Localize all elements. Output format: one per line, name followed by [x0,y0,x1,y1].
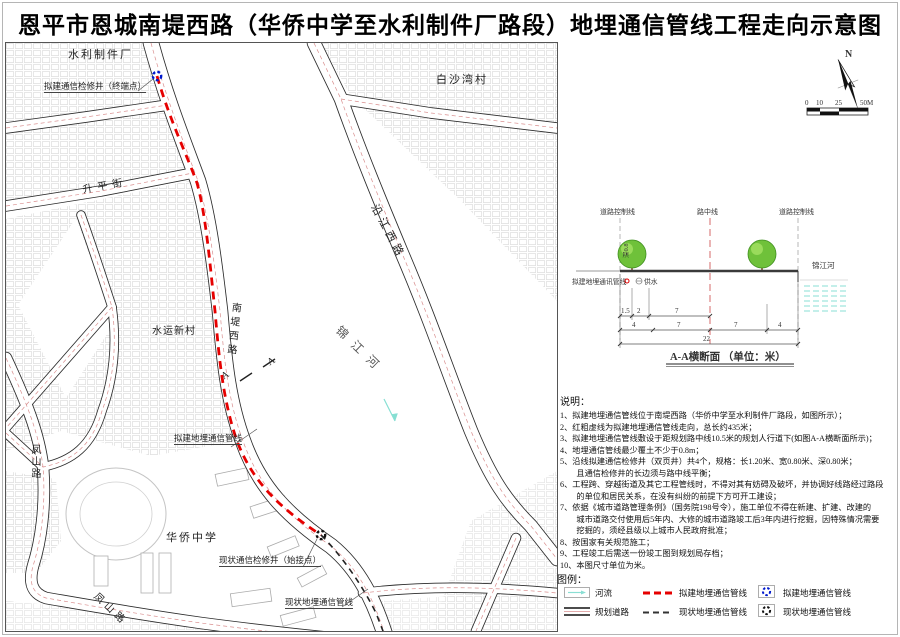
dim-4b: 4 [778,321,782,329]
label-shuiyun-village: 水运新村 [152,327,196,337]
river-swatch-icon [564,587,590,598]
note-line: 7、依据《城市道路管理条例》（国务院198号令），施工单位不得在新建、扩建、改建… [560,502,896,514]
note-line: 1、拟建地埋通信管线位于南堤西路（华侨中学至水利制件厂路段，如图所示）； [560,410,896,422]
dim-1-5: 1.5 [621,307,630,315]
river-hatch [804,286,846,311]
section-water-label: 供水 [644,277,658,286]
site-map [6,43,557,631]
note-line: 10、本图尺寸单位为米。 [560,560,896,572]
proposed-well-swatch-icon [758,585,775,598]
scale-tick-25: 25 [835,99,843,107]
cross-section: 道路控制线 路中线 道路控制线 锦江河 [558,192,898,377]
label-baisha-village: 白沙湾村 [436,75,488,86]
dim-4a: 4 [632,321,636,329]
label-proposed-line: 拟建地埋通信管线 [174,434,242,445]
legend-panel: 图例： 河流 拟建地埋通信管线 拟建地埋通信管线 规划道路 现状地埋通信管线 [557,571,895,629]
note-line: 2、红粗虚线为拟建地埋通信管线走向，总长约435米； [560,422,896,434]
note-line: 城市道路交付使用后5年内、大修的城市道路竣工后3年内进行挖掘，因特殊情况需要 [560,514,896,526]
scale-bar: 0 10 25 50M [802,96,886,122]
note-line: 6、工程跨、穿越街道及其它工程管线时，不得对其有妨碍及破坏，并协调好线路经过路段 [560,479,896,491]
scale-tick-10: 10 [816,99,824,107]
north-label: N [845,49,853,60]
existing-line-swatch-icon [643,610,673,615]
legend-label-existing-well: 现状地埋通信管线 [783,608,851,617]
note-line: 3、拟建地埋通信管线敷设于距规划路中线10.5米的规划人行道下(如图A-A横断面… [560,433,896,445]
note-line: 的单位和居民关系，在没有纠纷的前提下方可开工建设； [560,491,896,503]
sheet-title: 恩平市恩城南堤西路（华侨中学至水利制件厂路段）地埋通信管线工程走向示意图 [0,6,900,40]
dim-7b: 7 [677,321,681,329]
planned-road-swatch-icon [564,606,590,617]
note-line: 5、沿线拟建通信检修井（双页井）共4个，规格：长1.20米、宽0.80米、深0.… [560,456,896,468]
drawing-sheet: 恩平市恩城南堤西路（华侨中学至水利制件厂路段）地埋通信管线工程走向示意图 [0,0,900,637]
note-line: 9、工程竣工后需送一份竣工图到规划局存档； [560,548,896,560]
note-line: 且通信检修井的长边须与路中线平衡； [560,468,896,480]
proposed-line-swatch-icon [643,590,673,596]
label-factory: 水利制件厂 [68,50,133,61]
dim-2: 2 [637,307,641,315]
section-river-label: 锦江河 [812,260,835,270]
notes-panel: 说明： 1、拟建地埋通信管线位于南堤西路（华侨中学至水利制件厂路段，如图所示）；… [560,393,896,571]
school-grounds [66,468,171,593]
label-terminal-well: 拟建通信检修井（终端点） [44,82,146,93]
tree-icon [748,240,776,272]
legend-label-existing-line: 现状地埋通信管线 [679,608,747,617]
section-center-line-label: 路中线 [697,207,718,216]
river-flow-arrow [384,399,398,421]
legend-heading: 图例： [557,571,587,586]
note-line: 挖掘的，须经县级以上城市人民政府批准； [560,525,896,537]
note-line: 8、按国家有关规范施工； [560,537,896,549]
legend-label-proposed-line: 拟建地埋通信管线 [679,589,747,598]
legend-label-proposed-well: 拟建地埋通信管线 [783,589,851,598]
site-map-panel [5,42,558,632]
section-right-control-label: 道路控制线 [779,207,814,216]
scale-tick-0: 0 [805,99,809,107]
scale-tick-50: 50M [860,99,874,107]
note-line: 4、地埋通信管线最少覆土不少于0.8m； [560,445,896,457]
label-start-well: 现状通信检修井（始接点） [219,556,321,567]
dim-7c: 7 [734,321,738,329]
label-fengshan-road-west: 凤山路 [29,444,39,480]
section-caption: A-A横断面 （单位：米） [670,350,786,363]
legend-label-planned-road: 规划道路 [595,608,629,617]
section-pipe-label: 拟建地埋通讯管线 [572,277,627,286]
notes-lines: 1、拟建地埋通信管线位于南堤西路（华侨中学至水利制件厂路段，如图所示）；2、红粗… [560,410,896,571]
section-left-control-label: 道路控制线 [600,207,635,216]
legend-label-river: 河流 [595,589,612,598]
existing-well-swatch-icon [758,604,775,617]
dim-7a: 7 [675,307,679,315]
section-depth-label: 深0.8 [621,243,630,258]
label-school: 华侨中学 [166,533,218,544]
label-existing-line: 现状地埋通信管线 [285,598,353,609]
notes-heading: 说明： [560,393,896,408]
dim-22: 22 [703,335,711,343]
